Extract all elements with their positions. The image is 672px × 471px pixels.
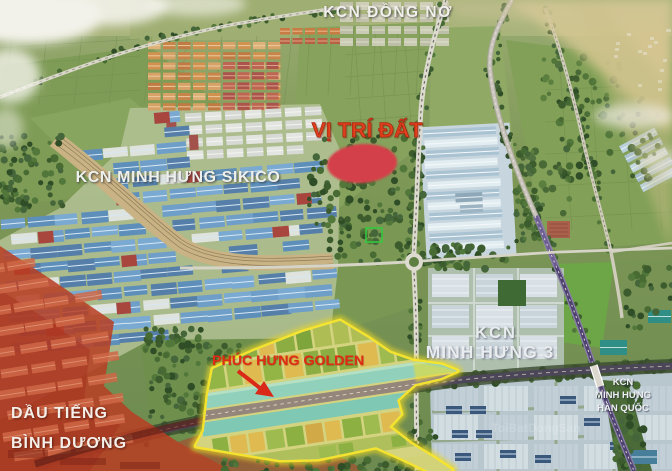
- svg-text:KCN: KCN: [613, 377, 634, 388]
- svg-text:KCN: KCN: [475, 324, 517, 342]
- svg-text:ToiBatDongSan: ToiBatDongSan: [491, 421, 580, 435]
- svg-text:PHÚC HƯNG GOLDEN: PHÚC HƯNG GOLDEN: [212, 351, 364, 369]
- svg-text:KCN ĐỒNG NƠ: KCN ĐỒNG NƠ: [323, 3, 453, 21]
- svg-text:VỊ TRÍ ĐẤT: VỊ TRÍ ĐẤT: [311, 117, 422, 142]
- svg-text:MINH HƯNG: MINH HƯNG: [595, 390, 651, 401]
- svg-text:HÀN QUỐC: HÀN QUỐC: [597, 402, 649, 414]
- svg-text:DẦU TIẾNG: DẦU TIẾNG: [11, 403, 108, 422]
- svg-text:KCN MINH HƯNG SIKICO: KCN MINH HƯNG SIKICO: [76, 169, 281, 186]
- svg-text:MINH HƯNG 3: MINH HƯNG 3: [426, 342, 555, 362]
- svg-text:BÌNH DƯƠNG: BÌNH DƯƠNG: [11, 433, 127, 452]
